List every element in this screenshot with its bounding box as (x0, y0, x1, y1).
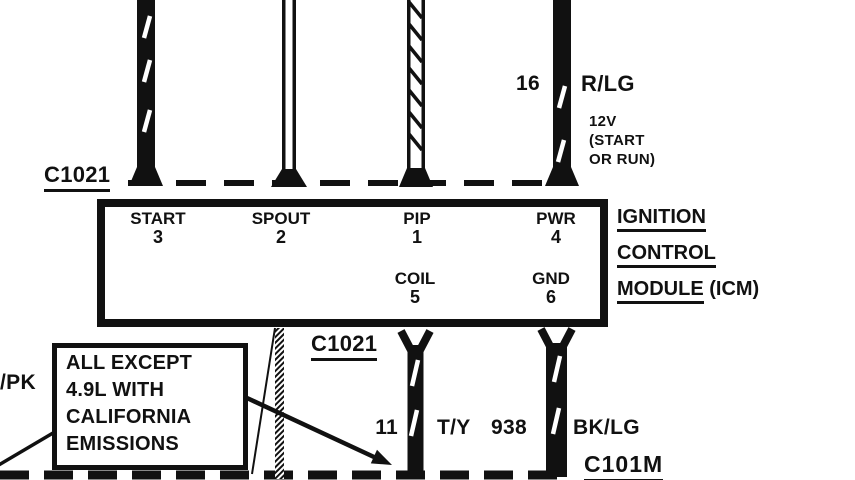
wiring-diagram-page: ALL EXCEPT 4.9L WITH CALIFORNIA EMISSION… (0, 0, 855, 480)
pin-start: START 3 (103, 209, 213, 247)
pin-coil: COIL 5 (360, 269, 470, 307)
pin-spout: SPOUT 2 (226, 209, 336, 247)
pin-name: START (103, 209, 213, 228)
icm-title-line3: MODULE (ICM) (617, 279, 759, 304)
left-wire-color-partial: /PK (0, 371, 36, 395)
pin-number: 2 (226, 228, 336, 247)
connector-label-c101m: C101M (584, 451, 663, 480)
gnd-wire-color: BK/LG (573, 416, 640, 440)
pin-number: 6 (496, 288, 606, 307)
pin-name: PWR (501, 209, 611, 228)
pwr-wire (545, 0, 579, 186)
pin-name: PIP (362, 209, 472, 228)
spout-wire (271, 0, 307, 187)
callout-left-line (0, 433, 53, 466)
coil-circuit-number: 11 (358, 416, 398, 440)
pin-gnd: GND 6 (496, 269, 606, 307)
pin-pwr: PWR 4 (501, 209, 611, 247)
shielded-wire (275, 328, 284, 479)
pin-number: 1 (362, 228, 472, 247)
icm-title-line1: IGNITION (617, 207, 759, 232)
coil-wire (401, 331, 430, 479)
pin-name: COIL (360, 269, 470, 288)
callout-text: ALL EXCEPT 4.9L WITH CALIFORNIA EMISSION… (66, 350, 192, 458)
start-wire (129, 0, 163, 186)
pip-wire (399, 0, 433, 187)
connector-label-c1021-mid: C1021 (311, 331, 377, 361)
pin-number: 5 (360, 288, 470, 307)
pin-number: 4 (501, 228, 611, 247)
pwr-wire-color: R/LG (581, 71, 635, 97)
pin-name: GND (496, 269, 606, 288)
gnd-circuit-number: 938 (491, 416, 527, 440)
pin-number: 3 (103, 228, 213, 247)
coil-wire-color: T/Y (437, 416, 471, 440)
gnd-wire (541, 329, 572, 477)
connector-label-c1021-top: C1021 (44, 162, 110, 192)
pwr-circuit-number: 16 (496, 72, 540, 96)
pin-name: SPOUT (226, 209, 336, 228)
icm-title: IGNITION CONTROL MODULE (ICM) (617, 207, 759, 315)
icm-title-line2: CONTROL (617, 243, 759, 268)
pwr-voltage-note: 12V (START OR RUN) (589, 112, 655, 169)
pin-pip: PIP 1 (362, 209, 472, 247)
